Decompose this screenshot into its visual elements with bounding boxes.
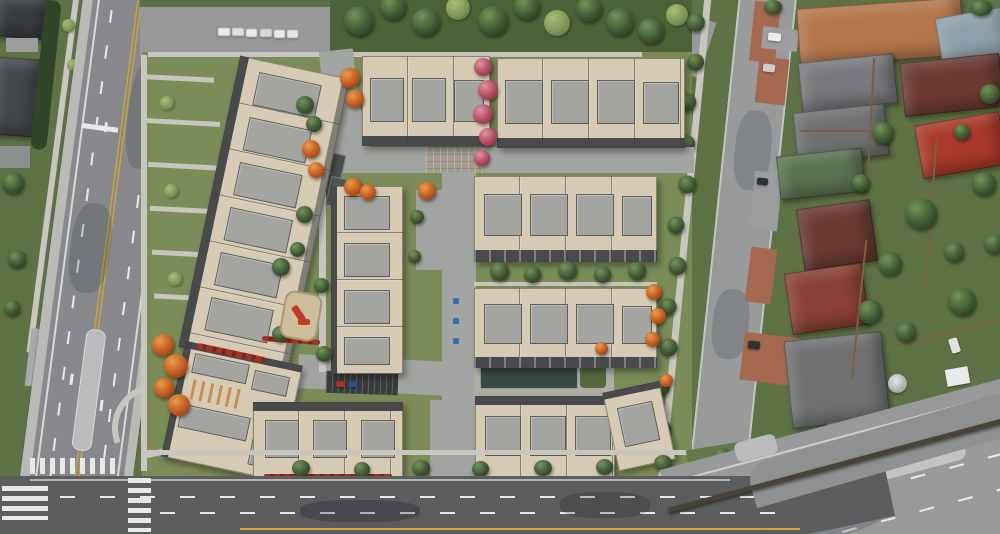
tree: [972, 172, 996, 196]
tree: [4, 300, 20, 316]
parked-car: [260, 29, 272, 37]
tree: [954, 124, 970, 140]
internal-street-east-west: [326, 147, 694, 173]
roof-edge: [331, 186, 337, 374]
pink-tree: [474, 58, 492, 76]
tree: [970, 0, 992, 16]
accessible-stall-marking: [453, 318, 459, 324]
asphalt-patch: [560, 492, 650, 518]
townhouse-block-E: [474, 288, 657, 368]
south-sidewalk: [145, 450, 693, 455]
car-dark: [757, 177, 769, 185]
roof-terrace-square: [484, 304, 522, 344]
orange-tree: [595, 342, 608, 355]
orange-tree: [418, 182, 436, 200]
car-red: [336, 381, 345, 387]
lawn-tree: [160, 96, 174, 110]
orange-tree: [168, 394, 190, 416]
courtyard-walk: [474, 282, 657, 286]
roof-terrace-square: [530, 194, 568, 236]
parked-car: [287, 30, 298, 38]
house-roof-maroon: [796, 199, 878, 271]
tree: [514, 0, 540, 20]
orange-tree: [164, 354, 188, 378]
tree: [544, 10, 570, 36]
tree: [905, 198, 937, 230]
orange-tree: [646, 284, 662, 300]
tree: [576, 0, 602, 22]
mews-tree: [296, 206, 313, 223]
roof-terrace-square: [530, 304, 568, 344]
orange-tree: [154, 378, 174, 398]
courtyard-tree: [628, 262, 646, 280]
stop-bar: [82, 123, 118, 133]
orange-tree: [360, 184, 376, 200]
roof-terrace-square: [252, 72, 322, 119]
roof-terrace-square: [643, 82, 679, 124]
house-roof-green: [776, 148, 866, 201]
asphalt-patch: [65, 201, 116, 295]
lawn-tree: [164, 184, 178, 198]
tree: [944, 242, 964, 262]
townhouse-block-C: [331, 186, 403, 374]
north-tree-belt: [330, 0, 692, 52]
car-dark: [748, 340, 761, 349]
townhouse-block-B1: [362, 56, 490, 146]
site-tree: [410, 210, 424, 224]
tree: [764, 0, 782, 14]
mews-tree: [272, 258, 290, 276]
parked-car: [218, 28, 230, 36]
townhouse-block-D: [474, 176, 657, 262]
roof-terrace-square: [505, 80, 543, 124]
tree: [896, 322, 916, 342]
courtyard-tree: [594, 266, 611, 283]
tree: [980, 84, 1000, 104]
roof-terrace-square: [344, 290, 390, 324]
roof-terrace-square: [370, 78, 404, 122]
boulevard-tree: [412, 460, 430, 476]
tree: [858, 300, 882, 324]
tree: [948, 288, 976, 316]
car-white: [768, 32, 782, 41]
mews-tree: [314, 278, 329, 293]
pink-tree: [479, 128, 497, 146]
tree: [380, 0, 406, 20]
crosswalk-zebra: [30, 458, 118, 474]
crosswalk-zebra: [128, 478, 151, 532]
tree: [2, 172, 24, 194]
roof-terrace-square: [243, 117, 313, 164]
orange-tree: [346, 90, 364, 108]
car-blue: [348, 381, 357, 387]
orange-tree: [660, 374, 673, 387]
tree: [852, 174, 870, 192]
median-island: [71, 328, 107, 452]
tree: [872, 122, 894, 144]
roof-terrace-square: [223, 207, 293, 254]
pink-tree: [478, 80, 498, 100]
pink-tree: [473, 104, 493, 124]
boulevard-tree: [354, 462, 370, 477]
pink-tree: [474, 150, 490, 166]
orange-tree: [650, 308, 666, 324]
roof-edge: [475, 396, 615, 405]
gazebo: [888, 374, 907, 393]
crosswalk-zebra: [2, 486, 48, 520]
asphalt-patch: [300, 500, 420, 522]
courtyard-tree: [558, 261, 577, 280]
roof-terrace-square: [214, 252, 284, 299]
roof-edge: [497, 138, 685, 148]
tree: [8, 250, 26, 268]
tree: [344, 6, 374, 36]
orange-tree: [340, 68, 360, 88]
driveway-pad: [6, 38, 38, 52]
tree: [878, 252, 902, 276]
boulevard-tree: [292, 460, 310, 476]
roof-terrace-square: [344, 243, 390, 277]
orange-tree: [302, 140, 320, 158]
roof-edge: [253, 402, 403, 411]
street-tree: [678, 175, 698, 195]
terrace-furniture: [190, 379, 245, 409]
aerial-site-plan-image: [0, 0, 1000, 534]
turn-arrow-marking: [99, 400, 103, 411]
townhouse-block-B2: [497, 58, 685, 148]
playground-slide-base: [298, 319, 310, 325]
mews-tree: [296, 96, 314, 114]
parked-car: [274, 30, 285, 38]
roof-terrace-square: [576, 304, 614, 344]
yellow-line: [240, 528, 800, 530]
roof-terrace-square: [597, 80, 635, 124]
tree: [412, 8, 440, 36]
boulevard-tree: [534, 460, 552, 476]
lawn-tree: [168, 272, 182, 286]
street-tree: [62, 19, 75, 32]
parked-car: [232, 28, 244, 36]
mews-tree: [316, 346, 332, 362]
lane-dashes: [160, 512, 800, 514]
accessible-stall-marking: [453, 298, 459, 304]
orange-tree: [152, 334, 174, 356]
car-silver: [763, 63, 776, 72]
tree: [606, 8, 634, 36]
lane-dashes: [60, 496, 780, 498]
roof-terrace-square: [622, 196, 652, 236]
tree: [478, 6, 508, 36]
mews-tree: [306, 116, 322, 132]
roof-terrace-square: [251, 370, 290, 397]
concrete-pad: [0, 146, 30, 168]
site-tree: [408, 250, 421, 263]
roof-edge: [474, 357, 657, 368]
parked-car: [246, 29, 257, 37]
courtyard-tree: [524, 266, 541, 283]
roof-terrace-square: [576, 194, 614, 236]
townhouse-block-G: [253, 402, 403, 480]
boulevard-tree: [472, 461, 489, 477]
tree: [446, 0, 470, 20]
roof-terrace-square: [617, 401, 661, 448]
internal-street-south: [430, 400, 476, 478]
roof-terrace-square: [412, 78, 446, 122]
turn-arrow-marking: [69, 374, 73, 385]
orange-tree: [645, 332, 660, 347]
accessible-stall-marking: [453, 338, 459, 344]
tree: [984, 234, 1000, 254]
orange-tree: [308, 162, 324, 178]
roof-edge: [362, 136, 490, 146]
roof-terrace-square: [344, 337, 390, 365]
courtyard-tree: [490, 262, 509, 281]
roof-terrace-square: [233, 162, 303, 209]
roof-terrace-square: [344, 196, 390, 230]
roof-terrace-square: [484, 194, 522, 236]
roof-terrace-square: [551, 80, 589, 124]
tree: [638, 18, 664, 44]
mews-tree: [290, 242, 305, 257]
boulevard-tree: [596, 459, 613, 475]
